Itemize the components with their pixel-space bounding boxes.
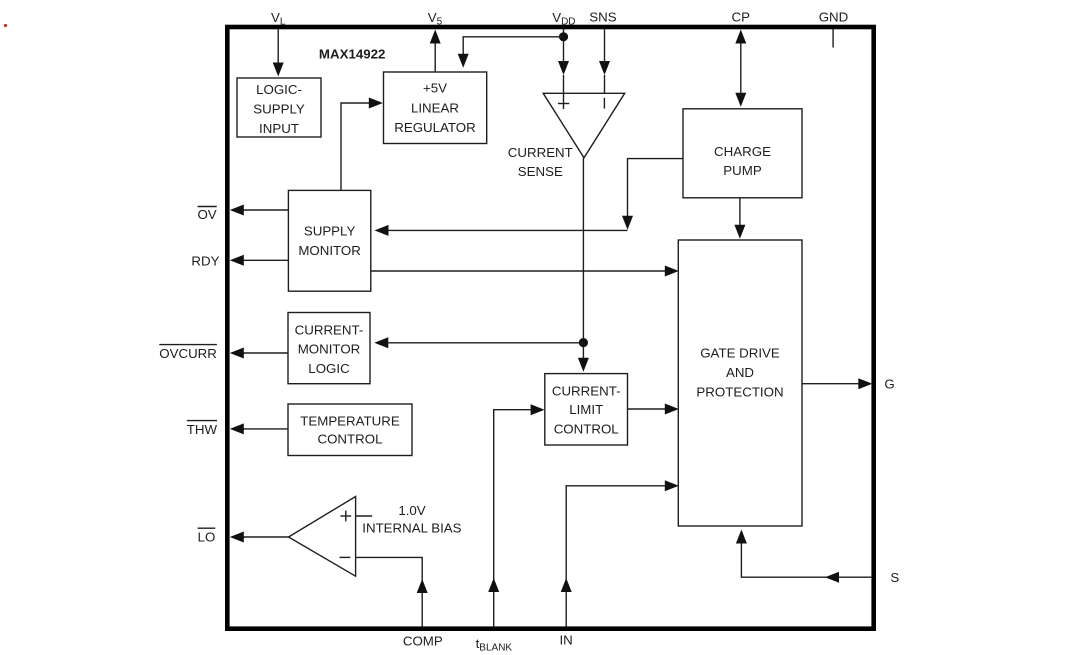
svg-text:CURRENT-: CURRENT- [295,323,364,338]
svg-text:COMP: COMP [403,634,443,649]
svg-text:PROTECTION: PROTECTION [696,385,783,400]
svg-text:CONTROL: CONTROL [554,422,619,437]
svg-text:TEMPERATURE: TEMPERATURE [300,413,400,428]
svg-text:THW: THW [187,422,218,437]
svg-text:SNS: SNS [589,10,616,25]
svg-text:LOGIC: LOGIC [308,361,350,376]
svg-text:G: G [884,376,894,391]
svg-text:SUPPLY: SUPPLY [253,101,305,116]
svg-text:LO: LO [198,530,216,545]
svg-text:1.0V: 1.0V [398,503,425,518]
svg-text:+5V: +5V [423,81,447,96]
svg-text:CHARGE: CHARGE [714,144,771,159]
svg-text:SUPPLY: SUPPLY [304,223,356,238]
svg-text:PUMP: PUMP [723,163,762,178]
svg-text:MONITOR: MONITOR [298,243,361,258]
svg-text:CP: CP [732,10,751,25]
svg-text:SENSE: SENSE [518,164,563,179]
svg-text:LIMIT: LIMIT [569,402,603,417]
svg-text:GATE DRIVE: GATE DRIVE [700,346,780,361]
svg-text:INTERNAL BIAS: INTERNAL BIAS [362,521,461,536]
svg-text:AND: AND [726,365,754,380]
svg-text:INPUT: INPUT [259,121,299,136]
svg-text:MAX14922: MAX14922 [319,46,386,61]
svg-text:CURRENT: CURRENT [508,145,573,160]
svg-text:REGULATOR: REGULATOR [394,120,476,135]
svg-text:IN: IN [559,632,572,647]
svg-text:MONITOR: MONITOR [298,342,361,357]
svg-text:LOGIC-: LOGIC- [256,82,302,97]
svg-text:RDY: RDY [191,253,219,268]
svg-text:S: S [890,570,899,585]
svg-text:CONTROL: CONTROL [317,431,382,446]
svg-text:CURRENT-: CURRENT- [552,384,621,399]
svg-text:OVCURR: OVCURR [159,346,217,361]
svg-text:LINEAR: LINEAR [411,100,459,115]
svg-text:GND: GND [819,10,849,25]
svg-text:OV: OV [197,207,216,222]
